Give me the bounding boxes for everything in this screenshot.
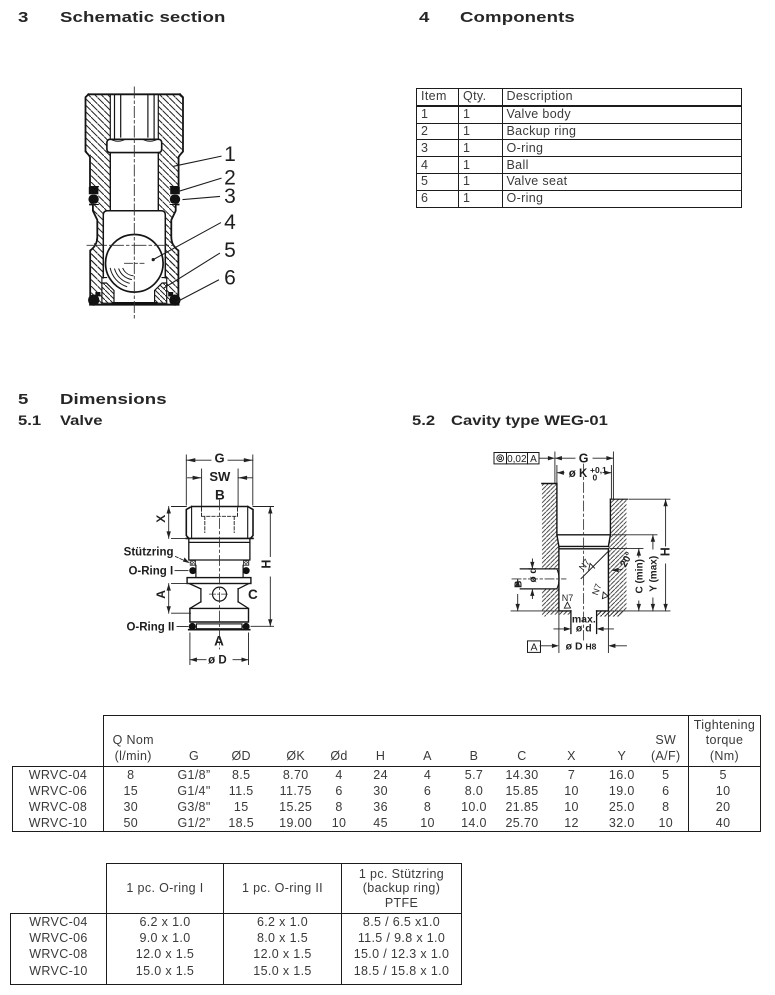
svg-text:G: G — [579, 451, 589, 465]
svg-text:ø d: ø d — [528, 568, 539, 583]
svg-text:B: B — [215, 487, 225, 502]
svg-text:6: 6 — [224, 267, 236, 290]
svg-text:0: 0 — [593, 473, 598, 483]
svg-text:Y (max): Y (max) — [648, 556, 659, 592]
svg-text:A: A — [530, 641, 537, 653]
svg-text:G: G — [214, 451, 224, 466]
svg-text:ø d: ø d — [576, 623, 592, 635]
svg-text:4: 4 — [224, 211, 236, 234]
svg-text:0,02: 0,02 — [507, 454, 527, 465]
svg-text:1: 1 — [224, 143, 236, 166]
svg-text:A: A — [214, 633, 224, 648]
svg-text:C: C — [248, 587, 258, 602]
svg-text:X: X — [154, 515, 168, 523]
svg-text:C (min): C (min) — [634, 559, 645, 593]
svg-text:ø D H8: ø D H8 — [566, 641, 597, 653]
svg-text:5: 5 — [224, 239, 236, 262]
svg-text:3: 3 — [224, 185, 236, 208]
svg-text:N7: N7 — [590, 582, 603, 596]
svg-text:ø D: ø D — [208, 654, 227, 666]
svg-text:ø K: ø K — [569, 468, 588, 480]
svg-text:A: A — [154, 590, 168, 599]
svg-text:SW: SW — [209, 469, 231, 484]
svg-text:H: H — [658, 547, 672, 556]
svg-text:A: A — [530, 454, 537, 465]
svg-text:Stützring: Stützring — [124, 547, 174, 559]
svg-text:O-Ring II: O-Ring II — [126, 622, 174, 634]
svg-text:O-Ring I: O-Ring I — [128, 566, 173, 578]
svg-text:B: B — [513, 581, 524, 588]
svg-text:H: H — [259, 560, 273, 569]
svg-text:N7: N7 — [562, 593, 574, 603]
